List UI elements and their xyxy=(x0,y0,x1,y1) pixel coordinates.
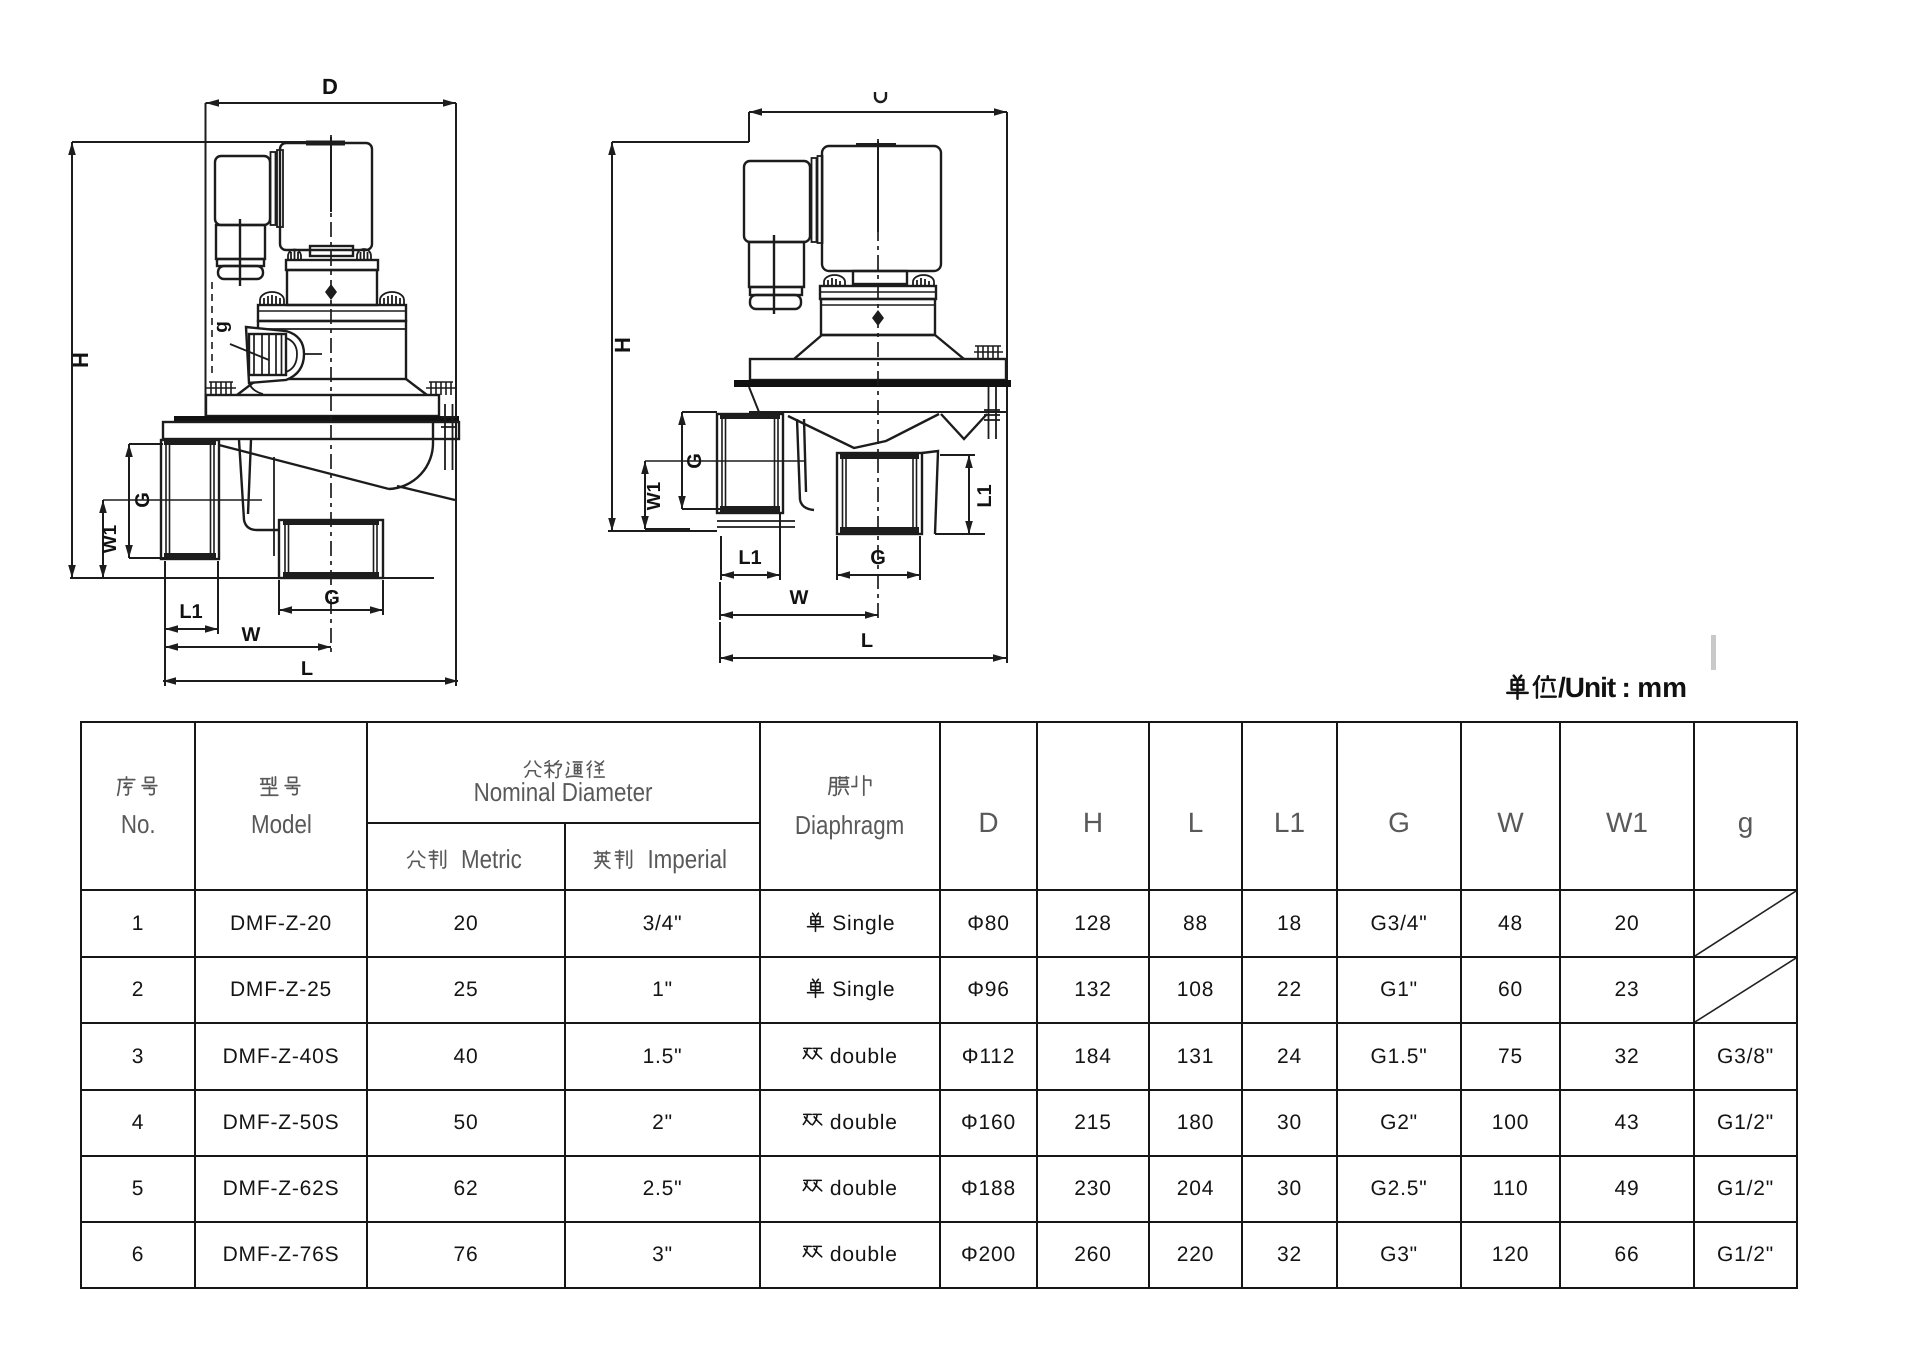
svg-text:L1: L1 xyxy=(974,484,996,507)
svg-text:L: L xyxy=(301,658,313,680)
svg-text:G: G xyxy=(870,547,886,569)
svg-text:g: g xyxy=(211,321,232,333)
svg-text:G: G xyxy=(684,453,706,469)
svg-text:L1: L1 xyxy=(179,601,202,623)
svg-text:W: W xyxy=(790,587,809,609)
svg-text:L: L xyxy=(861,630,873,652)
svg-text:W: W xyxy=(242,624,261,646)
svg-text:H: H xyxy=(610,337,635,353)
svg-text:D: D xyxy=(322,74,338,99)
svg-text:W1: W1 xyxy=(100,524,121,553)
svg-text:G: G xyxy=(324,587,340,609)
svg-text:L1: L1 xyxy=(738,547,761,569)
svg-text:W1: W1 xyxy=(644,481,665,510)
svg-text:H: H xyxy=(68,352,93,368)
svg-text:G: G xyxy=(132,492,154,508)
